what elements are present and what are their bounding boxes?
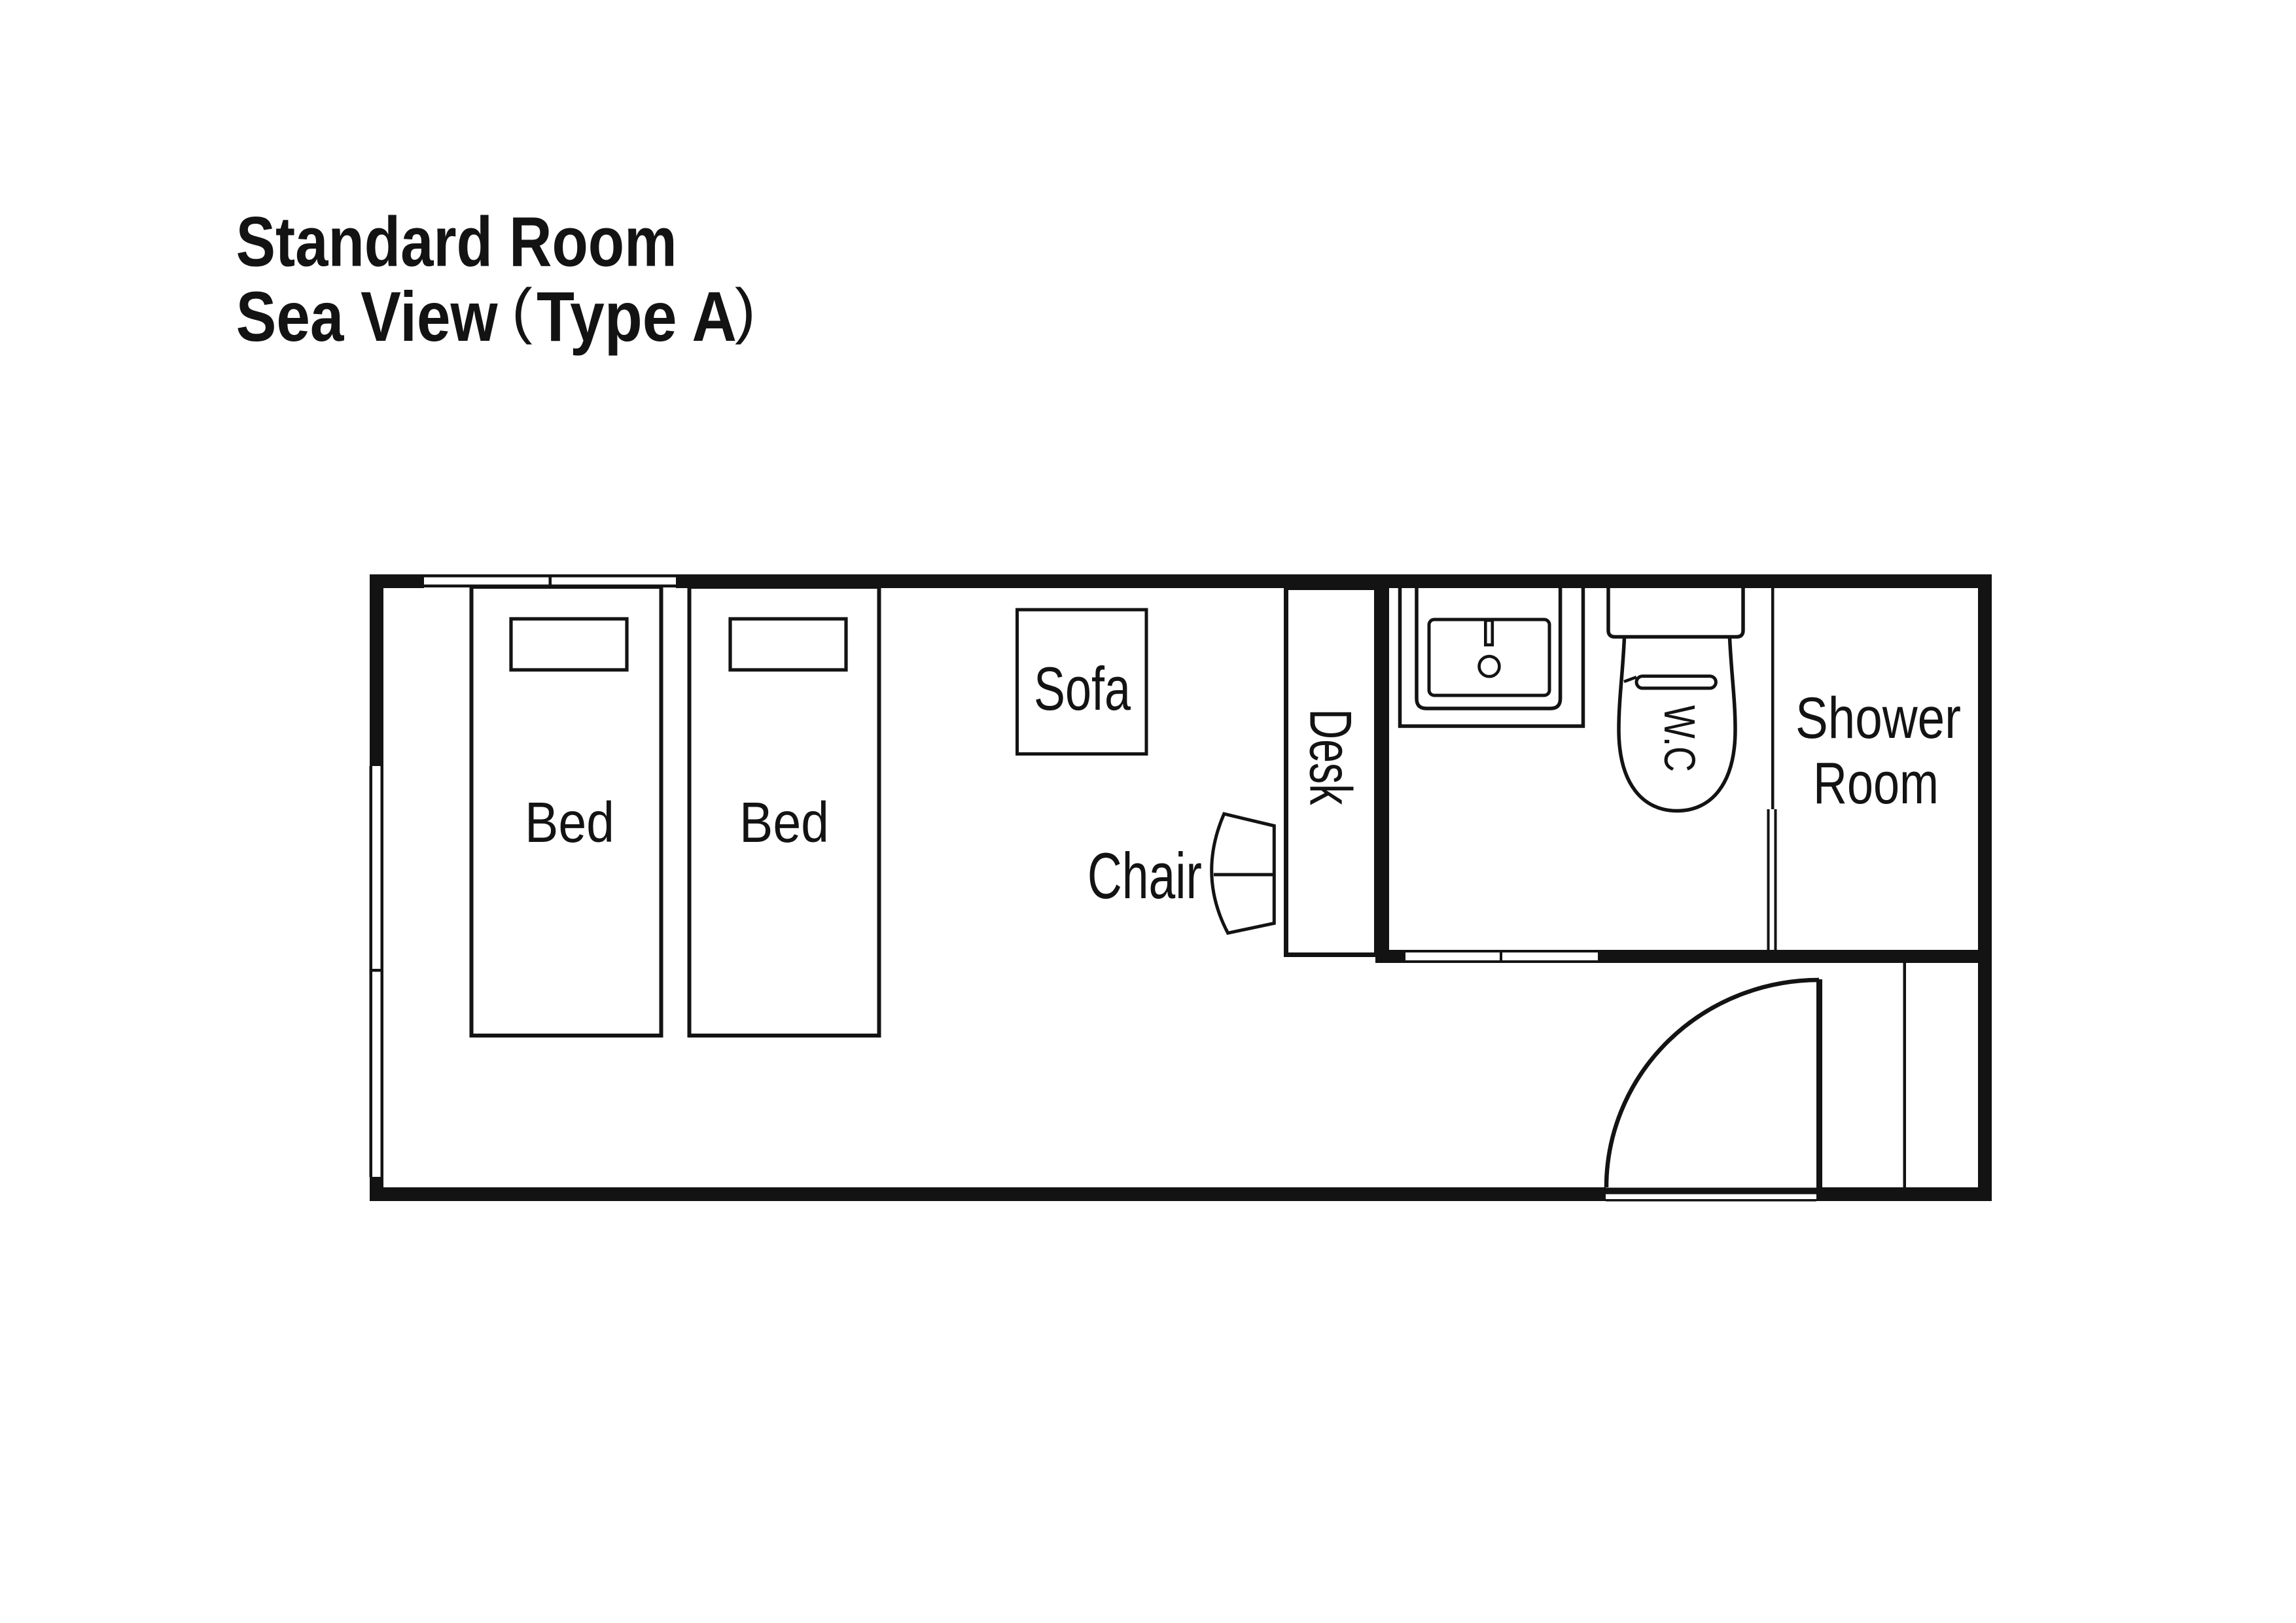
svg-text:Shower: Shower bbox=[1795, 685, 1961, 750]
svg-text:Bed: Bed bbox=[525, 791, 614, 854]
svg-text:Sea View: Sea View bbox=[236, 277, 498, 356]
svg-text:Chair: Chair bbox=[1087, 839, 1202, 912]
svg-text:): ) bbox=[735, 276, 756, 345]
svg-text:Bed: Bed bbox=[739, 791, 829, 854]
svg-text:W.C: W.C bbox=[1655, 705, 1704, 772]
svg-text:(: ( bbox=[512, 276, 533, 345]
svg-text:Sofa: Sofa bbox=[1034, 654, 1131, 723]
svg-text:Type A: Type A bbox=[537, 277, 737, 356]
svg-text:Room: Room bbox=[1813, 751, 1939, 816]
svg-text:Desk: Desk bbox=[1298, 709, 1364, 805]
svg-text:Standard Room: Standard Room bbox=[236, 203, 677, 281]
